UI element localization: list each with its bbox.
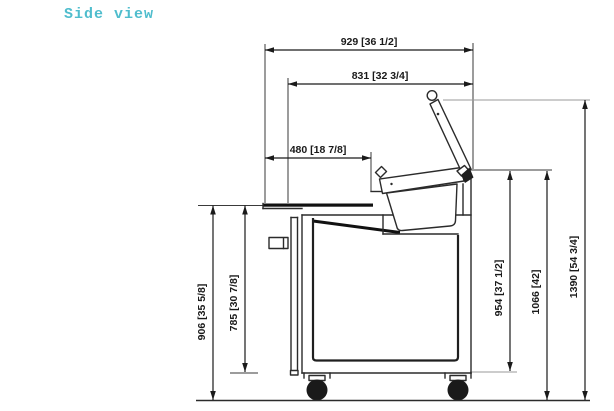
lid-panel	[430, 100, 471, 175]
side-view-page: Side view	[0, 0, 614, 411]
dim-929: 929 [36 1/2]	[265, 36, 473, 53]
counter-top	[263, 204, 373, 207]
interior-compartment	[313, 218, 458, 361]
door	[291, 218, 299, 376]
wheel-left	[307, 380, 328, 401]
wheel-right	[448, 380, 469, 401]
side-view-drawing: 929 [36 1/2] 831 [32 3/4] 480 [18 7/8] 9…	[0, 0, 614, 411]
dim-label-1390: 1390 [54 3/4]	[568, 236, 580, 298]
food-pan	[376, 167, 465, 231]
dim-label-906: 906 [35 5/8]	[196, 284, 208, 341]
dim-label-480: 480 [18 7/8]	[290, 144, 347, 156]
page-title: Side view	[64, 6, 154, 23]
lid-hook	[427, 91, 437, 101]
dim-label-929: 929 [36 1/2]	[341, 36, 398, 48]
dim-954: 954 [37 1/2]	[493, 171, 513, 371]
well-slope	[313, 221, 400, 233]
caster-right	[445, 373, 471, 401]
dim-label-1066: 1066 [42]	[530, 270, 542, 315]
dim-1390: 1390 [54 3/4]	[568, 100, 588, 400]
dim-785: 785 [30 7/8]	[228, 206, 248, 373]
pan-handle-tab	[376, 167, 387, 178]
dim-label-954: 954 [37 1/2]	[493, 260, 505, 317]
dim-1066: 1066 [42]	[530, 171, 550, 400]
dim-480: 480 [18 7/8]	[265, 144, 371, 161]
caster-left	[304, 373, 330, 401]
dim-906: 906 [35 5/8]	[196, 206, 216, 401]
dim-label-785: 785 [30 7/8]	[228, 275, 240, 332]
door-foot	[291, 371, 299, 376]
dim-831: 831 [32 3/4]	[288, 70, 473, 87]
dim-label-831: 831 [32 3/4]	[352, 70, 409, 82]
door-knob	[269, 238, 288, 249]
